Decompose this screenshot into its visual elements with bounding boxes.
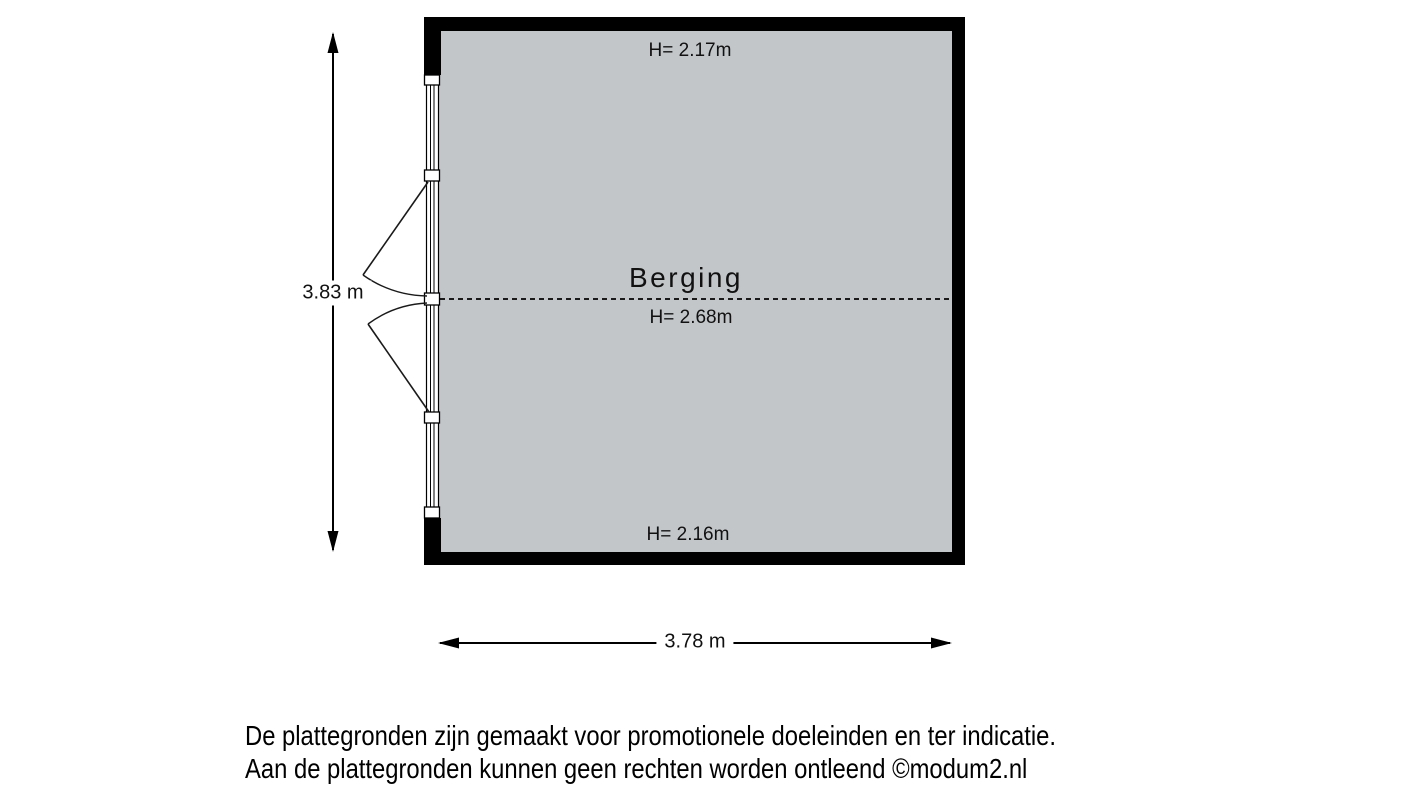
- arrow-left-icon: [438, 638, 459, 649]
- frame-junction-lower: [425, 412, 440, 423]
- disclaimer-line-1: De plattegronden zijn gemaakt voor promo…: [245, 720, 1056, 752]
- disclaimer-line-2: Aan de plattegronden kunnen geen rechten…: [245, 753, 1027, 785]
- arrow-up-icon: [328, 32, 339, 53]
- door-swing-arc-bottom: [368, 303, 427, 324]
- room-label: Berging: [629, 262, 743, 294]
- frame-junction-top: [425, 75, 440, 85]
- frame-junction-upper: [425, 170, 440, 181]
- arrow-right-icon: [931, 638, 952, 649]
- door-swing-arc-top: [363, 275, 427, 296]
- wall-top: [424, 17, 965, 31]
- door-leaf-bottom: [368, 324, 429, 412]
- double-door: [363, 182, 429, 412]
- frame-junction-bottom: [425, 507, 440, 518]
- floorplan-canvas: [0, 0, 1422, 800]
- arrow-down-icon: [328, 531, 339, 552]
- door-leaf-top: [363, 182, 428, 275]
- ceiling-height-middle-label: H= 2.68m: [650, 307, 733, 329]
- ceiling-height-top-label: H= 2.17m: [649, 40, 732, 62]
- ceiling-height-bottom-label: H= 2.16m: [647, 524, 730, 546]
- wall-right: [952, 17, 965, 565]
- wall-bottom: [424, 552, 965, 565]
- floorplan-page: H= 2.17m Berging H= 2.68m H= 2.16m 3.83 …: [0, 0, 1422, 800]
- wall-left-top-corner: [424, 17, 441, 75]
- dimension-height-label: 3.83 m: [294, 281, 371, 306]
- wall-left-bottom-corner: [424, 518, 441, 565]
- dimension-width-label: 3.78 m: [656, 630, 733, 655]
